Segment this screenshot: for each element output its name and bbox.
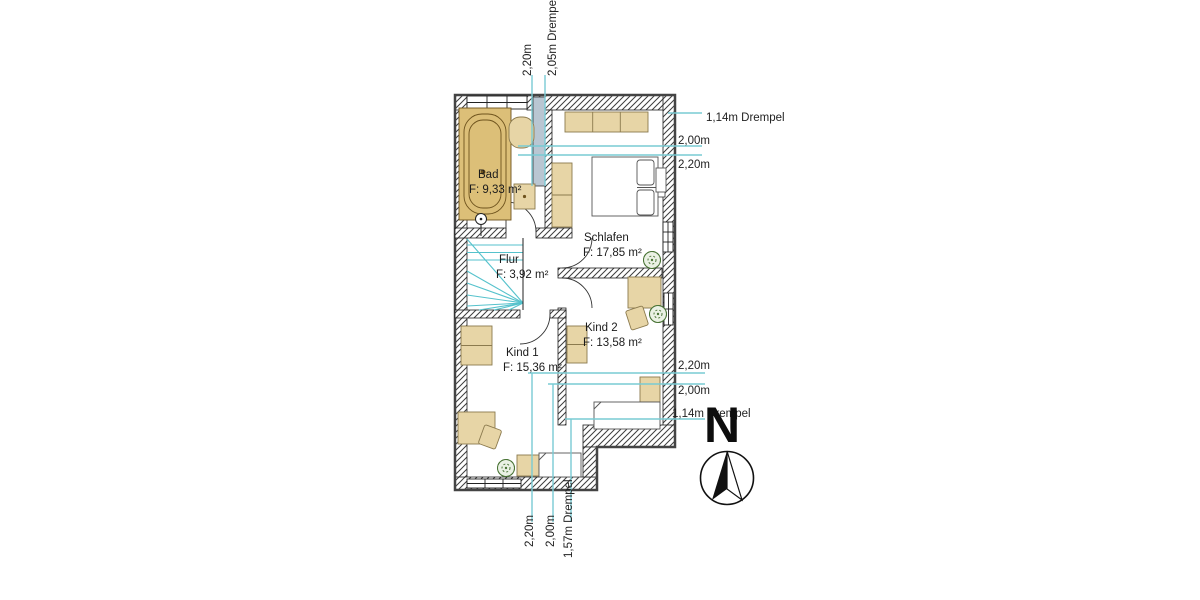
room-label-schlafen: Schlafen — [584, 232, 629, 244]
window-kind1-bottom — [467, 479, 521, 488]
room-area-bad: F: 9,33 m² — [469, 184, 522, 196]
wall-bad-schlafen — [545, 110, 552, 238]
wardrobe-schlafen-top — [565, 112, 648, 132]
room-area-schlafen: F: 17,85 m² — [583, 247, 642, 259]
bathtub — [459, 108, 511, 220]
north-label: N — [704, 397, 740, 453]
washbasin — [509, 117, 534, 148]
room-area-kind2: F: 13,58 m² — [583, 337, 642, 349]
dim-right-114-drempel: 1,14m Drempel — [706, 112, 785, 124]
desk-kind2 — [628, 277, 661, 308]
wardrobe-schlafen-left — [552, 163, 572, 227]
dim-bottom-157: 1,57m Drempel — [563, 479, 575, 558]
floor-plan-canvas: Bad F: 9,33 m² Schlafen F: 17,85 m² Flur… — [0, 0, 1200, 600]
shaft — [533, 97, 545, 186]
wall-step-vertical — [583, 447, 597, 477]
dim-top-220: 2,20m — [522, 44, 534, 76]
compass-needle-dark — [712, 451, 727, 500]
window-schlafen-right — [663, 222, 673, 252]
nightstand-kind1 — [517, 455, 539, 476]
wall-right — [663, 95, 675, 447]
wall-top — [527, 95, 675, 110]
dim-right-220: 2,20m — [678, 159, 710, 171]
room-label-bad: Bad — [478, 169, 498, 181]
chair-kind2 — [625, 306, 648, 331]
wardrobe-kind1 — [461, 326, 492, 365]
plant-icon — [644, 252, 661, 269]
dim-right-lower-220: 2,20m — [678, 360, 710, 372]
wall-kind1-stub — [550, 310, 566, 318]
wall-stub-mid — [536, 228, 572, 238]
wall-flur-kind1 — [455, 310, 520, 318]
room-area-kind1: F: 15,36 m² — [503, 362, 562, 374]
door-arc-kind1 — [520, 314, 550, 344]
bed-kind1 — [539, 453, 581, 477]
room-label-kind2: Kind 2 — [585, 322, 618, 334]
dim-top-205: 2,05m Drempel — [547, 0, 559, 76]
room-label-flur: Flur — [499, 254, 519, 266]
dim-bottom-200: 2,00m — [545, 515, 557, 547]
bed-schlafen — [592, 157, 666, 216]
nightstand-kind2 — [640, 377, 660, 402]
wall-schlafen-kind2 — [558, 268, 662, 278]
door-arc-kind2 — [562, 278, 592, 308]
dim-right-lower-200: 2,00m — [678, 385, 710, 397]
room-label-kind1: Kind 1 — [506, 347, 539, 359]
window-bad-top — [467, 96, 527, 109]
room-area-flur: F: 3,92 m² — [496, 269, 549, 281]
compass-needle-light — [727, 451, 742, 500]
dim-right-200: 2,00m — [678, 135, 710, 147]
bed-kind2 — [594, 402, 660, 429]
floor-plan-drawing: Bad F: 9,33 m² Schlafen F: 17,85 m² Flur… — [0, 0, 1200, 600]
dim-bottom-220: 2,20m — [524, 515, 536, 547]
plant-icon — [498, 460, 515, 477]
plant-icon — [650, 306, 667, 323]
